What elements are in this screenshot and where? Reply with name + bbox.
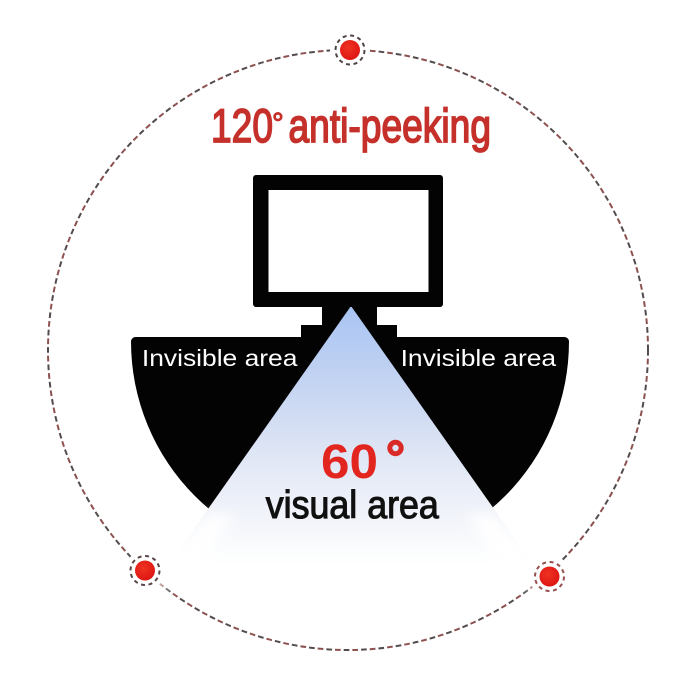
- svg-text:60: 60: [321, 436, 378, 489]
- svg-text:visual area: visual area: [266, 484, 439, 527]
- svg-text:120: 120: [211, 99, 273, 152]
- svg-text:anti-peeking: anti-peeking: [289, 99, 492, 152]
- svg-text:Invisible area: Invisible area: [401, 345, 558, 371]
- svg-text:Invisible area: Invisible area: [142, 345, 299, 371]
